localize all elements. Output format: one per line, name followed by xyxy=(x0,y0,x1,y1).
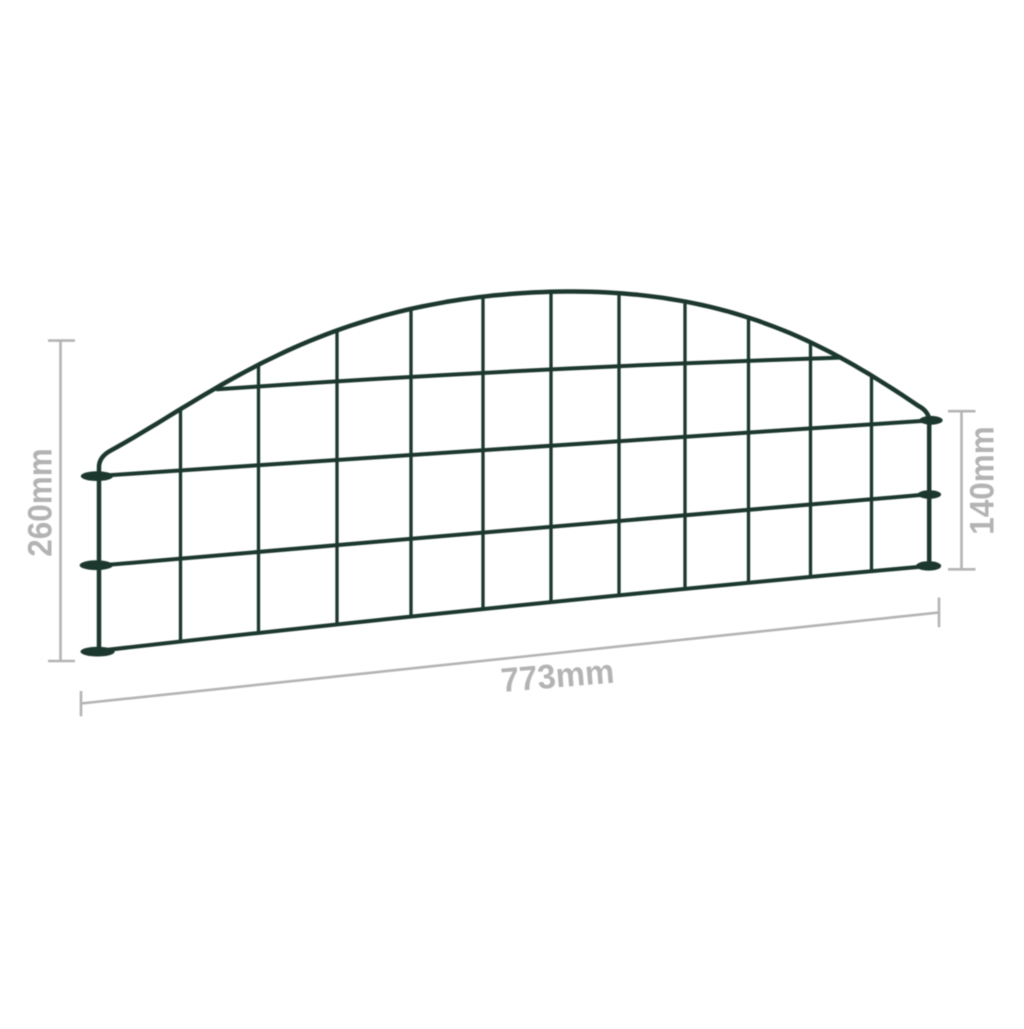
svg-text:260mm: 260mm xyxy=(21,448,59,557)
svg-text:140mm: 140mm xyxy=(964,426,1002,535)
